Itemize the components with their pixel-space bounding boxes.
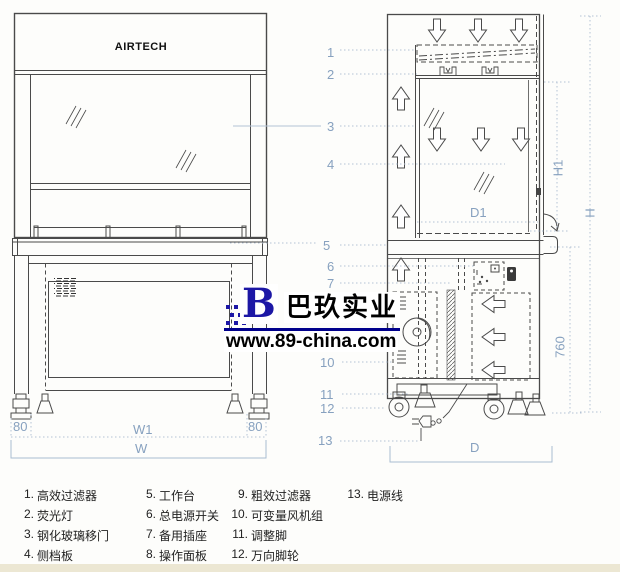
legend-column-1: 1.高效过滤器 2.荧光灯 3.钢化玻璃移门 4.侧档板: [16, 487, 109, 567]
dim-80-left: 80: [13, 419, 27, 434]
callout-1: 1: [327, 45, 334, 60]
dim-760: 760: [553, 336, 568, 358]
watermark-url: www.89-china.com: [224, 331, 398, 352]
legend-column-4: 13.电源线: [346, 487, 403, 507]
legend-item-1: 1.高效过滤器: [16, 487, 109, 507]
control-panel: [474, 262, 504, 290]
dim-h: H: [583, 208, 598, 217]
legend-item-3: 3.钢化玻璃移门: [16, 527, 109, 547]
side-worktable: [388, 234, 558, 259]
fluorescent-lamps: [440, 67, 498, 76]
dim-w: W: [135, 441, 147, 456]
callout-13: 13: [318, 433, 332, 448]
dim-d: D: [470, 440, 479, 455]
watermark-dots-icon: [226, 305, 230, 309]
legend-column-2: 5.工作台 6.总电源开关 7.备用插座 8.操作面板: [138, 487, 219, 567]
coarse-filter: [447, 290, 455, 380]
callout-5: 5: [323, 238, 330, 253]
hepa-filter: [417, 45, 537, 62]
brand-logo: AIRTECH: [110, 41, 172, 53]
front-right-foot: [227, 394, 243, 413]
return-air-duct: [472, 293, 530, 380]
legend-item-5: 5.工作台: [138, 487, 219, 507]
callout-4: 4: [327, 157, 334, 172]
watermark-logo: B: [240, 284, 278, 324]
side-foot-1: [415, 385, 435, 407]
callout-10: 10: [320, 355, 334, 370]
callout-11: 11: [320, 387, 334, 402]
callout-6: 6: [327, 259, 334, 274]
latch: [536, 188, 541, 195]
front-left-foot: [37, 394, 53, 413]
front-view-drawing: [11, 14, 269, 420]
side-foot-2: [508, 392, 528, 414]
legend-item-2: 2.荧光灯: [16, 507, 109, 527]
legend-item-11: 11.调整脚: [230, 527, 323, 547]
callout-2: 2: [327, 67, 334, 82]
callout-3: 3: [327, 119, 334, 134]
legend-item-9: 9.粗效过滤器: [230, 487, 323, 507]
dim-80-right: 80: [248, 419, 262, 434]
vent-grille: [54, 278, 77, 298]
legend-column-3: 9.粗效过滤器 10.可变量风机组 11.调整脚 12.万向脚轮: [230, 487, 323, 567]
power-switch: [507, 267, 516, 281]
front-right-caster: [249, 394, 269, 419]
side-glass-marks: [424, 108, 494, 194]
side-foot-3: [525, 394, 545, 415]
dim-h1: H1: [551, 160, 566, 177]
legend-item-13: 13.电源线: [346, 487, 403, 507]
side-caster-2: [484, 394, 504, 419]
technical-drawing-page: AIRTECH 1 2 3 4 5 6 7 10 11 12 13 80 W1 …: [0, 0, 620, 572]
front-left-caster: [11, 394, 31, 419]
dim-d1: D1: [470, 205, 487, 220]
legend-item-7: 7.备用插座: [138, 527, 219, 547]
bottom-strip: [0, 564, 620, 572]
callout-12: 12: [320, 401, 334, 416]
side-view-drawing: [388, 15, 560, 442]
glass-reflection-marks: [66, 106, 196, 172]
legend-item-6: 6.总电源开关: [138, 507, 219, 527]
dim-w1: W1: [133, 422, 153, 437]
side-caster-1: [389, 392, 409, 417]
watermark: B 巴玖实业 www.89-china.com: [222, 283, 424, 353]
watermark-company-name: 巴玖实业: [284, 292, 400, 323]
legend-item-10: 10.可变量风机组: [230, 507, 323, 527]
